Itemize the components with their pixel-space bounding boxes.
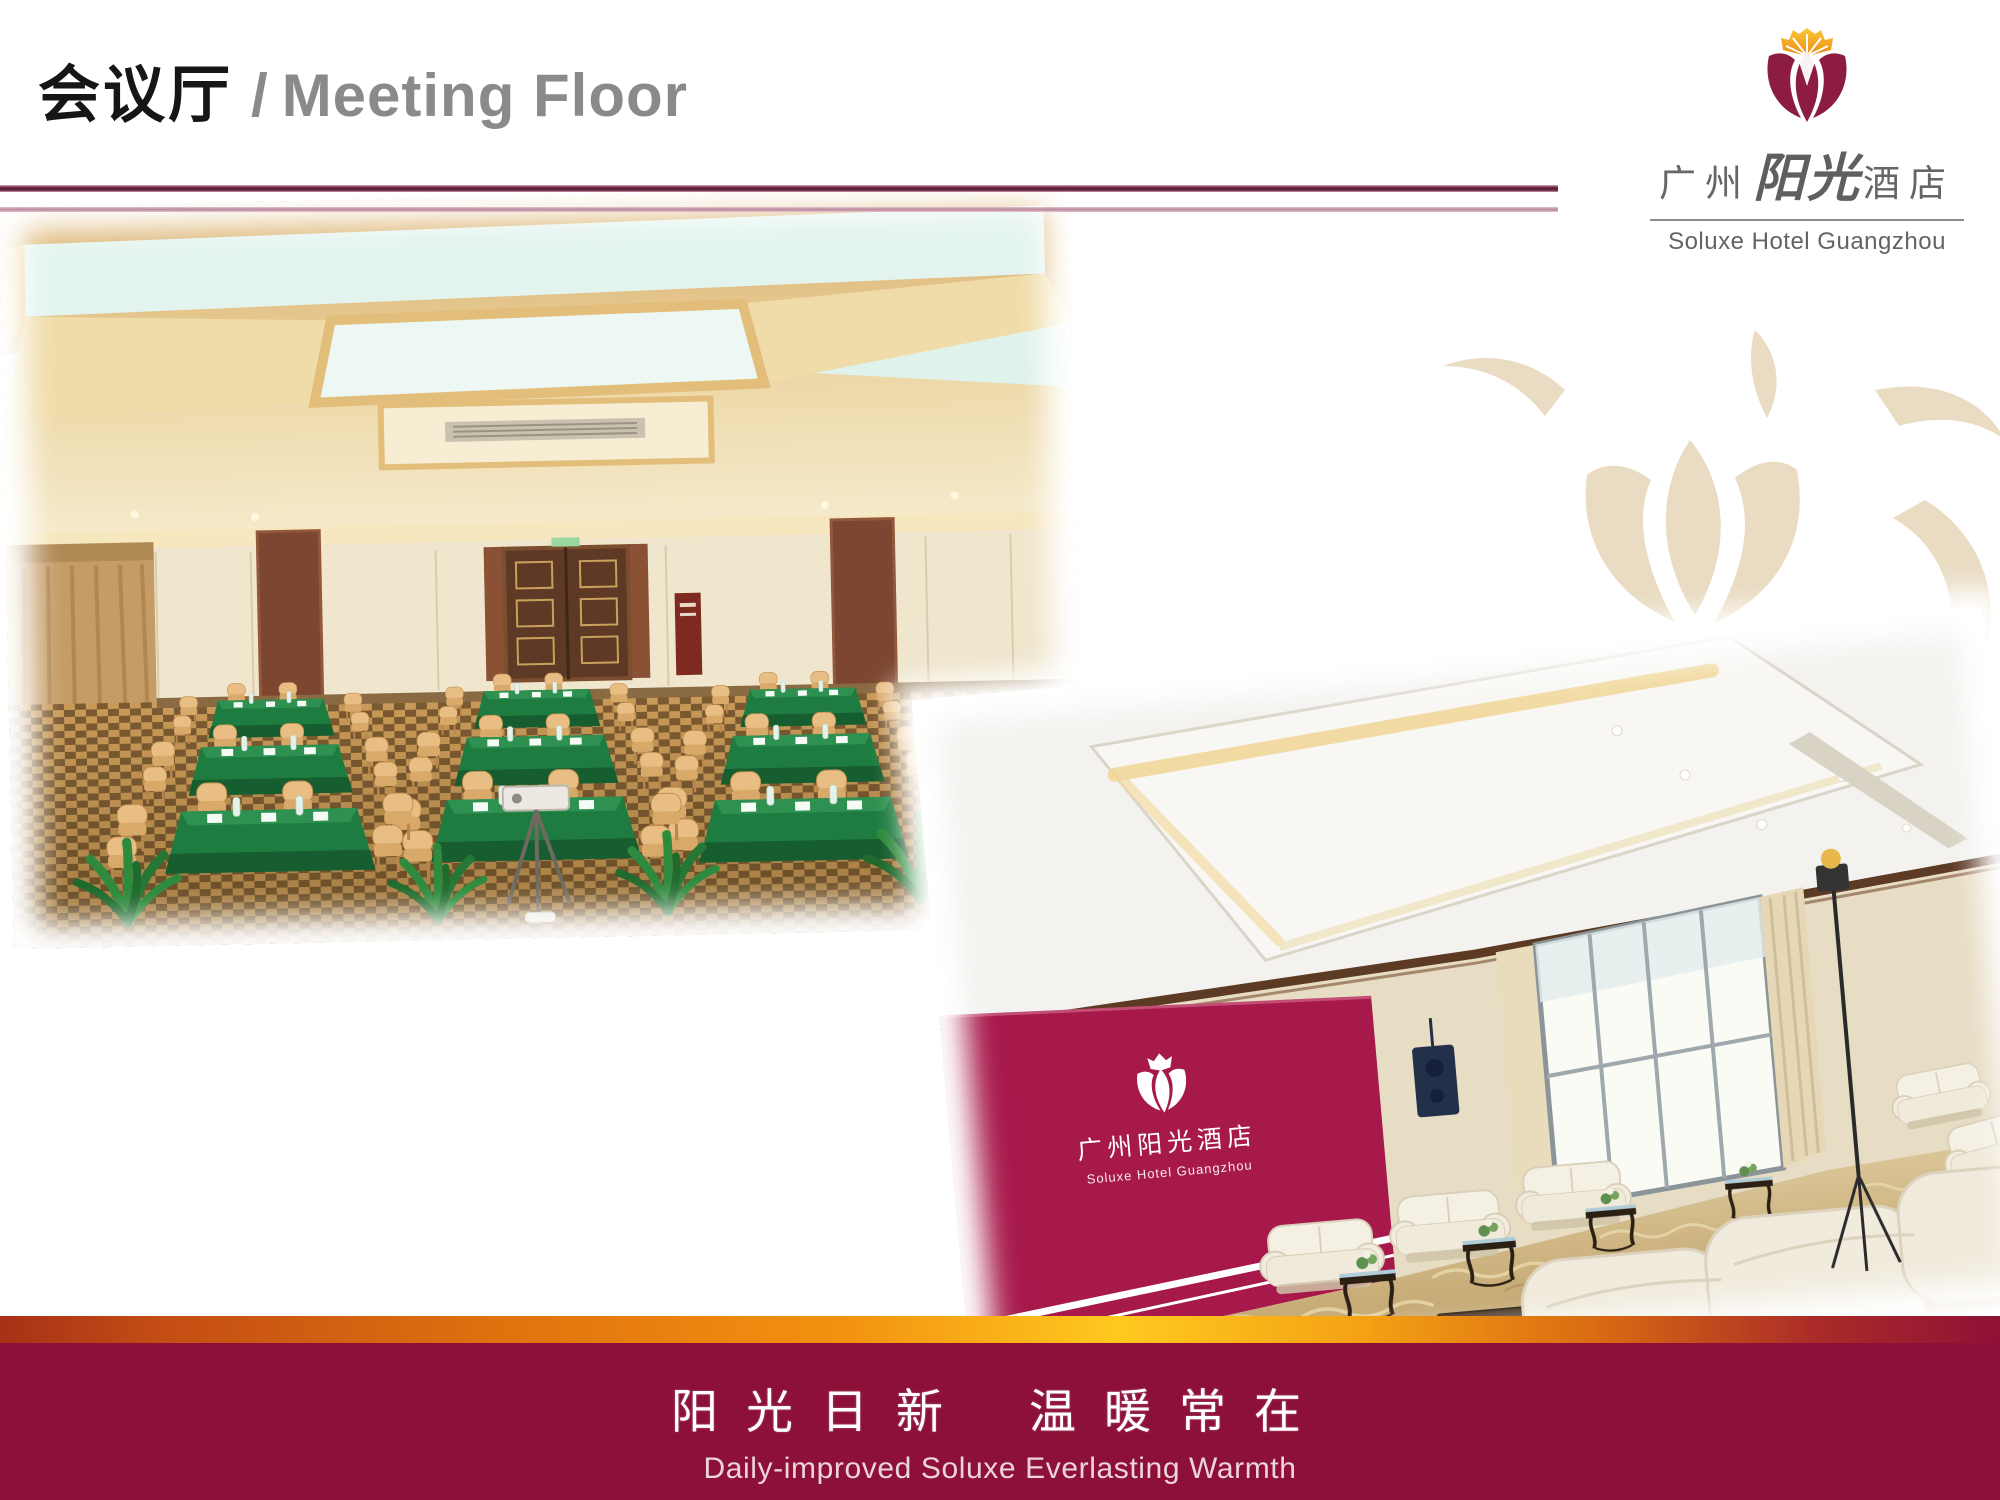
page-title: 会议厅 / Meeting Floor	[38, 44, 688, 134]
photo1-ceiling	[0, 185, 1075, 553]
footer-slogan-zh: 阳光日新 温暖常在	[671, 1373, 1329, 1442]
header-divider-dark	[0, 185, 1558, 192]
footer: 阳光日新 温暖常在 Daily-improved Soluxe Everlast…	[0, 1316, 2000, 1500]
page-title-separator: /	[251, 61, 268, 130]
footer-slogan-zh-right: 温暖常在	[1029, 1373, 1329, 1442]
logo-name-en: Soluxe Hotel Guangzhou	[1650, 228, 1964, 256]
hotel-logo: 广州 阳光 酒店 Soluxe Hotel Guangzhou	[1650, 26, 1964, 256]
logo-zh-brand: 阳光	[1753, 136, 1861, 211]
tulip-logo-icon	[1755, 26, 1859, 126]
photo-vip-lounge: 广州阳光酒店 Soluxe Hotel Guangzhou	[912, 606, 2000, 1397]
page-title-en: Meeting Floor	[282, 61, 688, 130]
footer-maroon-band: 阳光日新 温暖常在 Daily-improved Soluxe Everlast…	[0, 1343, 2000, 1500]
footer-gold-band	[0, 1316, 2000, 1343]
logo-zh-prefix: 广州	[1659, 153, 1751, 207]
slide: 会议厅 / Meeting Floor	[0, 0, 2000, 1500]
footer-slogan-zh-left: 阳光日新	[671, 1373, 971, 1442]
photo-meeting-room-classroom	[0, 185, 1084, 949]
footer-slogan-en: Daily-improved Soluxe Everlasting Warmth	[703, 1452, 1296, 1486]
header-divider-light	[0, 207, 1558, 212]
logo-underline	[1650, 219, 1964, 221]
logo-zh-suffix: 酒店	[1863, 153, 1955, 207]
logo-name-zh: 广州 阳光 酒店	[1650, 136, 1964, 211]
page-title-zh: 会议厅	[38, 44, 233, 134]
